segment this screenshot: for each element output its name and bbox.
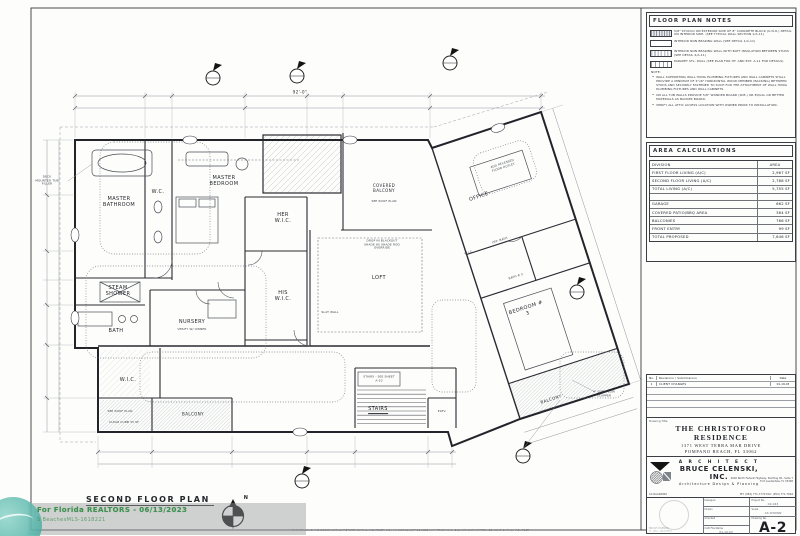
phone-line: PH: (954) 771-7770 FAX: (954) 771-7064 xyxy=(740,493,793,496)
legend-item: INTERIOR NON BEARING WALL WITH BATT INSU… xyxy=(650,50,792,58)
room-label-covered-balcony: COVERED BALCONY xyxy=(367,183,401,193)
notes-panel-title: FLOOR PLAN NOTES xyxy=(649,15,793,27)
project-no-field: Project No. 02-043 xyxy=(750,498,796,507)
room-label-elevator: ELEV. xyxy=(438,410,447,414)
note-item: • WALL SUPPORTING WALL HUNG PLUMBING FIX… xyxy=(652,76,792,92)
room-label-bath: BATH xyxy=(109,328,124,334)
table-row: BALCONIES 766 SF xyxy=(650,216,792,224)
copyright-line: THIS DRAWING AND DESIGN IS THE PROPERTY … xyxy=(292,529,548,532)
bullet-icon: • xyxy=(652,94,654,102)
project-address-line2: POMPANO BEACH, FL 33062 xyxy=(647,449,795,454)
architect-seal-area: BRUCE CELENSKI FL. REG. ARCHITECT xyxy=(647,498,704,534)
legend-item: PARAPET STL. WALL (SEE PLAN FOR HT. AND … xyxy=(650,60,792,68)
wall-type-symbol-parapet xyxy=(650,61,672,68)
revision-clouds xyxy=(86,138,624,402)
legend-item: INTERIOR NON BEARING WALL (SEE DETAIL 1/… xyxy=(650,40,792,48)
drawing-number: A-2 xyxy=(750,520,796,536)
table-row: FRONT ENTRY 99 SF xyxy=(650,224,792,232)
drawing-title-section: Drawing Title THE CHRISTOFORO RESIDENCE … xyxy=(647,418,795,457)
wall-type-symbol-insulated xyxy=(650,50,672,57)
project-name: THE CHRISTOFORO RESIDENCE xyxy=(647,424,795,442)
note-nursery: VERIFY W/ OWNER xyxy=(177,328,207,332)
cad-file-field: CAD File Name 01-19-03 xyxy=(703,526,749,534)
note-see-roof-plan-2: SEE ROOF PLAN xyxy=(106,410,134,414)
note-tub-filler: DECK MOUNTED TUB FILLER xyxy=(35,176,59,187)
room-label-wc: W.C. xyxy=(152,189,165,195)
note-clear-curb: CLEAR CURB 35 SF xyxy=(109,421,139,425)
bullet-icon: • xyxy=(652,76,654,92)
notes-label: NOTE: xyxy=(651,71,795,75)
note-blackout-shade: DROP IN BLACKOUT SHADE W/ SHADE ROD OVER… xyxy=(364,240,400,251)
table-row: GARAGE 662 SF xyxy=(650,200,792,208)
table-row: TOTAL LIVING (A/C) 5,755 SF xyxy=(650,185,792,193)
note-see-roof-plan-1: SEE ROOF PLAN xyxy=(369,200,399,204)
note-overflow-scupper: 4" OVERFLOW SCUPPER xyxy=(591,390,617,397)
designer-field: Designer xyxy=(703,498,749,507)
area-panel-title: AREA CALCULATIONS xyxy=(649,145,793,157)
north-label: N xyxy=(244,495,249,501)
signature-section: BRUCE CELENSKI FL. REG. ARCHITECT Design… xyxy=(647,498,795,534)
firm-address-line2: Fort Lauderdale, FL 33308 xyxy=(715,480,793,483)
wall-type-symbol-stud xyxy=(650,40,672,47)
bullet-icon: • xyxy=(652,104,654,108)
room-label-steam-shower: STEAM SHOWER xyxy=(104,285,132,298)
watermark-text-line1: For Florida REALTORS - 06/13/2023 xyxy=(37,506,187,514)
revision-row: 1 CLIENT CHANGES 01-19-03 xyxy=(647,382,795,389)
note-slat-wall: SLAT WALL xyxy=(321,311,338,315)
drawn-field: Drawn xyxy=(703,507,749,516)
table-row: TOTAL PROPOSED 7,646 SF xyxy=(650,233,792,241)
drawing-sheet: MASTER BATHROOM W.C. MASTER BEDROOM HER … xyxy=(0,0,800,536)
area-calculations-panel: AREA CALCULATIONS DIVISION AREA FIRST FL… xyxy=(646,142,796,262)
room-label-nursery: NURSERY xyxy=(179,319,205,325)
table-row: SECOND FLOOR LIVING (A/C) 2,788 SF xyxy=(650,176,792,184)
legend-item: 5/8" STUCCO ON EXTERIOR SIDE OF 8" CONCR… xyxy=(650,30,792,38)
note-item: • ON ALL TUB WALLS PROVIDE 5/8" WONDER B… xyxy=(652,94,792,102)
table-row: COVERED PATIO/BBQ AREA 364 SF xyxy=(650,208,792,216)
room-label-his-wic: HIS W.I.C. xyxy=(273,290,293,303)
revisions-table: No. Revisions / Submissions Date 1 CLIEN… xyxy=(647,375,795,418)
architect-logo xyxy=(649,460,673,486)
revision-row-empty xyxy=(647,401,795,408)
room-label-master-bedroom: MASTER BEDROOM xyxy=(206,175,242,188)
room-label-loft: LOFT xyxy=(372,275,386,281)
dimension-label-92: 92'-0" xyxy=(293,90,307,95)
room-label-wic: W.I.C. xyxy=(120,377,137,383)
seal-subtitle: FL. REG. ARCHITECT xyxy=(649,530,672,533)
architect-section: A R C H I T E C T BRUCE CELENSKI, INC. A… xyxy=(647,457,795,498)
checked-field: Checked xyxy=(703,517,749,526)
room-label-her-wic: HER W.I.C. xyxy=(273,212,293,225)
revisions-header-row: No. Revisions / Submissions Date xyxy=(647,375,795,382)
room-label-balcony-left: BALCONY xyxy=(182,412,204,417)
room-label-stairs: STAIRS xyxy=(368,406,388,414)
watermark-text-line2: S BeachesMLS-1618221 xyxy=(37,517,106,523)
table-row: FIRST FLOOR LIVING (A/C) 2,967 SF xyxy=(650,168,792,176)
drawing-title-label: Drawing Title xyxy=(647,418,795,423)
table-header-row: DIVISION AREA xyxy=(650,161,792,168)
drawing-no-field: Drawing No. A-2 xyxy=(750,517,796,536)
table-spacer-row xyxy=(650,193,792,200)
note-item: • VERIFY ALL ATTIC ACCESS LOCATION WITH … xyxy=(652,104,792,108)
detail-markers xyxy=(206,48,586,488)
room-label-master-bathroom: MASTER BATHROOM xyxy=(102,196,136,209)
note-stairs: STAIRS - SEE SHEET A-10 xyxy=(362,375,396,382)
area-calculations-table: DIVISION AREA FIRST FLOOR LIVING (A/C) 2… xyxy=(649,160,793,242)
title-block: No. Revisions / Submissions Date 1 CLIEN… xyxy=(646,374,796,534)
scale-field: Scale AS SHOWN xyxy=(750,507,796,516)
project-address-line1: 1371 WEST TERRA MAR DRIVE xyxy=(647,443,795,448)
revision-row-empty xyxy=(647,408,795,414)
license-number: CA RAA26000 xyxy=(649,493,667,496)
seal-circle xyxy=(659,500,689,530)
revision-row-empty xyxy=(647,395,795,402)
wall-type-symbol-block xyxy=(650,30,672,37)
revision-row-empty xyxy=(647,388,795,395)
floor-plan-notes-panel: FLOOR PLAN NOTES 5/8" STUCCO ON EXTERIOR… xyxy=(646,12,796,138)
